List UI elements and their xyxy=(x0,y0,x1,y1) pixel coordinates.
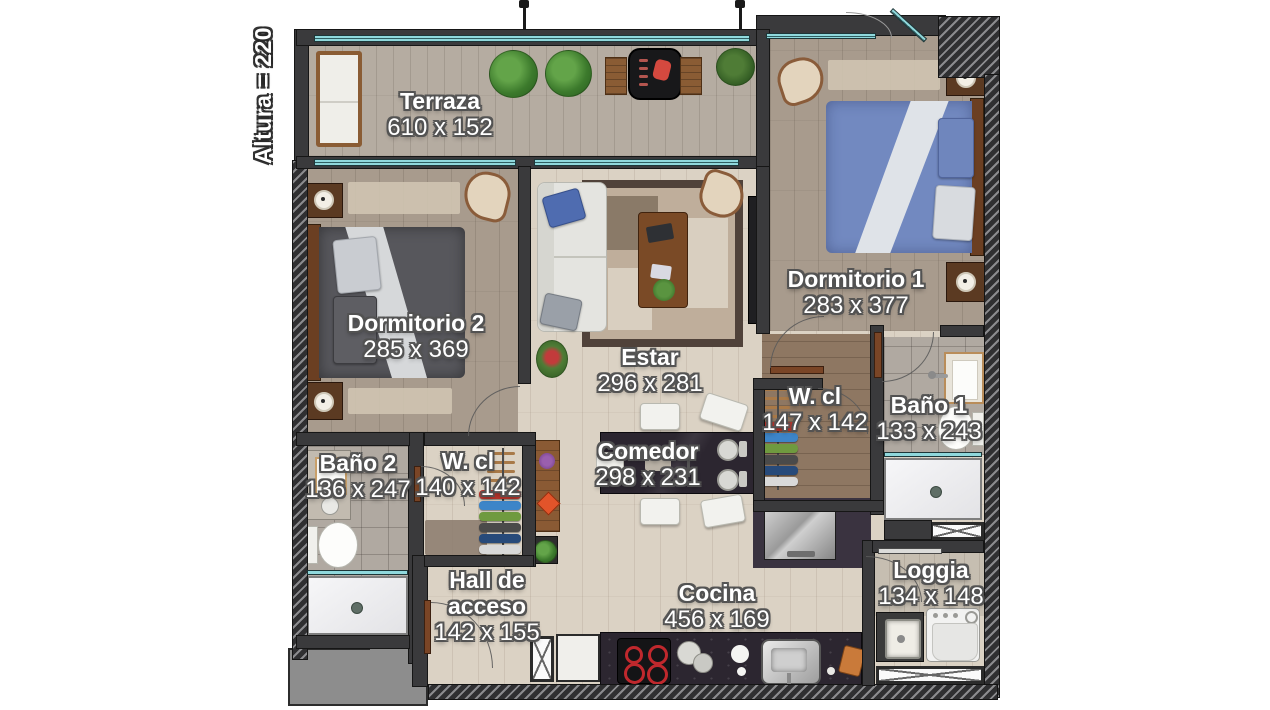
room-name: Baño 1 xyxy=(849,392,1009,418)
room-label-dormitorio2: Dormitorio 2 285 x 369 xyxy=(306,310,526,363)
dining-chair xyxy=(640,403,680,430)
shower-glass xyxy=(307,570,408,575)
wall xyxy=(424,555,534,567)
washing-machine-icon xyxy=(926,608,980,662)
room-label-cocina: Cocina 456 x 169 xyxy=(627,580,807,633)
railing-post xyxy=(735,0,745,8)
kitchen-sink-icon xyxy=(761,639,821,685)
lamp-icon xyxy=(314,392,334,412)
potted-plant-icon xyxy=(545,50,592,97)
double-bed-dorm1 xyxy=(826,98,984,256)
room-label-bano1: Baño 1 133 x 243 xyxy=(849,392,1009,445)
room-dims: 298 x 231 xyxy=(558,464,738,491)
rug xyxy=(348,388,452,414)
room-name: Dormitorio 2 xyxy=(306,310,526,336)
closet-rug xyxy=(425,520,487,555)
wall-hatched xyxy=(292,160,308,660)
room-dims: 285 x 369 xyxy=(306,336,526,363)
wall-hatched xyxy=(428,684,998,700)
room-label-hall: Hall de acceso 142 x 155 xyxy=(427,567,547,646)
room-dims: 140 x 142 xyxy=(393,474,543,501)
door-bano1 xyxy=(874,332,882,378)
wall xyxy=(753,500,884,512)
room-label-terraza: Terraza 610 x 152 xyxy=(340,88,540,141)
railing-post xyxy=(519,0,529,8)
room-dims: 296 x 281 xyxy=(560,370,740,397)
room-name: W. cl xyxy=(393,448,543,474)
laundry-sink xyxy=(876,612,924,662)
room-dims: 142 x 155 xyxy=(427,619,547,646)
coffee-table xyxy=(638,212,688,308)
dining-chair xyxy=(640,498,680,525)
sliding-door xyxy=(878,548,942,554)
floor-plan: Altura = 220 Terraza 610 x 152 Dormitori… xyxy=(0,0,1270,710)
lamp-icon xyxy=(314,190,334,210)
grill-side-table xyxy=(680,57,702,95)
toilet-icon xyxy=(318,522,358,568)
shower-tray xyxy=(307,576,408,635)
wall xyxy=(940,325,984,337)
room-name: Estar xyxy=(560,344,740,370)
wall-hatched xyxy=(938,16,1000,78)
wall xyxy=(296,432,410,446)
shaft-panel xyxy=(876,666,984,684)
room-dims: 133 x 243 xyxy=(849,418,1009,445)
room-label-comedor: Comedor 298 x 231 xyxy=(558,438,738,491)
bbq-grill-icon xyxy=(628,48,682,100)
room-name: Dormitorio 1 xyxy=(746,266,966,292)
rug xyxy=(828,60,940,90)
kitchen-counter xyxy=(600,632,862,685)
shower-tray xyxy=(884,458,982,520)
room-name: Terraza xyxy=(340,88,540,114)
shaft-panel xyxy=(930,522,984,540)
height-annotation: Altura = 220 xyxy=(250,14,277,164)
wall xyxy=(756,29,770,170)
room-dims: 610 x 152 xyxy=(340,114,540,141)
room-dims: 134 x 148 xyxy=(856,583,1006,610)
window xyxy=(314,35,750,42)
grill-side-table xyxy=(605,57,627,95)
kitchen-cabinet xyxy=(556,634,600,682)
room-name: Cocina xyxy=(627,580,807,606)
wall xyxy=(294,29,309,162)
room-name: Hall de acceso xyxy=(427,567,547,619)
wall xyxy=(884,520,932,540)
cooktop-icon xyxy=(617,638,671,684)
room-name: Loggia xyxy=(856,557,1006,583)
bush-icon xyxy=(716,48,755,86)
shower-glass xyxy=(884,452,982,457)
toilet-tank xyxy=(307,526,318,564)
wall xyxy=(296,635,410,649)
room-label-dormitorio1: Dormitorio 1 283 x 377 xyxy=(746,266,966,319)
room-dims: 283 x 377 xyxy=(746,292,966,319)
railing-post xyxy=(739,8,742,30)
room-name: Comedor xyxy=(558,438,738,464)
railing-post xyxy=(523,8,526,30)
sliding-glass-door xyxy=(534,159,739,166)
rug xyxy=(348,182,460,214)
room-label-loggia: Loggia 134 x 148 xyxy=(856,557,1006,610)
room-dims: 456 x 169 xyxy=(627,606,807,633)
window xyxy=(314,159,516,166)
room-label-wcl2: W. cl 140 x 142 xyxy=(393,448,543,501)
room-label-estar: Estar 296 x 281 xyxy=(560,344,740,397)
